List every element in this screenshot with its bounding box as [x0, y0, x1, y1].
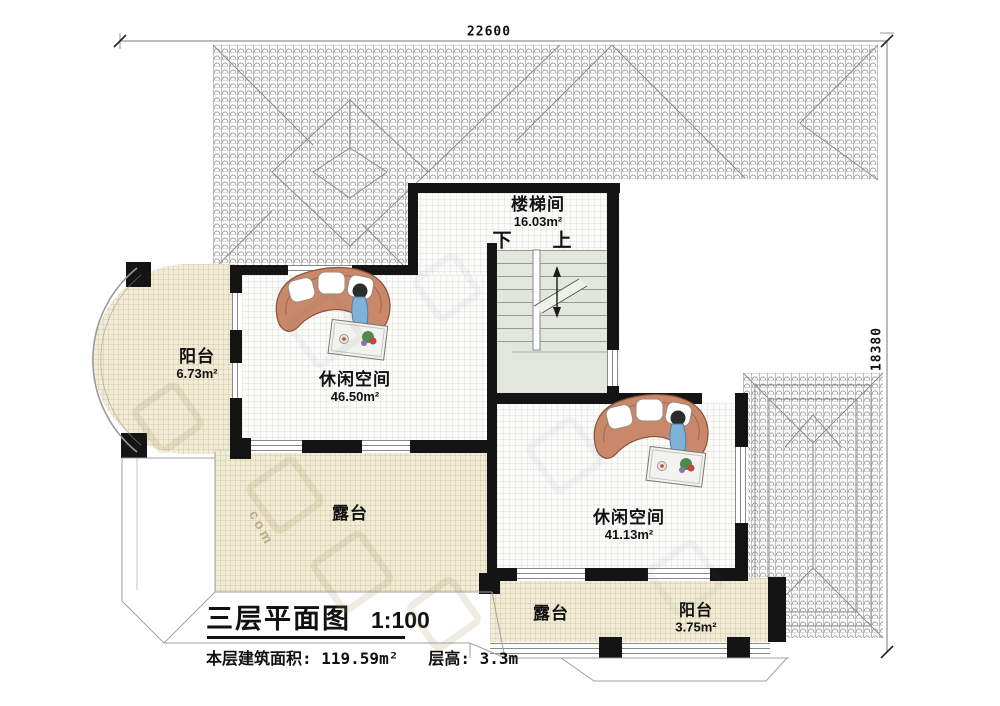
wall [302, 440, 362, 453]
balcony-left-area: 6.73m² [176, 366, 217, 381]
terrace-bottom-floor [490, 578, 770, 642]
wall [768, 577, 786, 642]
stairwell-name: 楼梯间 [511, 195, 565, 215]
leisure-left-floor [242, 275, 488, 443]
stairwell-label: 楼梯间 16.03m² [511, 195, 565, 229]
window [232, 293, 242, 330]
floor-height-text: 层高: 3.3m [428, 645, 518, 669]
leisure-right-area: 41.13m² [593, 527, 665, 542]
column [599, 637, 622, 658]
subtitle-row: 本层建筑面积: 119.59m² 层高: 3.3m [206, 645, 518, 669]
wall [410, 440, 497, 453]
wall [230, 265, 242, 293]
plan-scale: 1:100 [371, 607, 430, 634]
window [362, 440, 410, 453]
leisure-left-area: 46.50m² [319, 389, 391, 404]
terrace-bottom-label: 露台 [533, 604, 569, 624]
window [735, 447, 748, 523]
wall [585, 568, 648, 581]
wall [352, 265, 418, 275]
floor-area-text: 本层建筑面积: 119.59m² [206, 645, 398, 669]
column [121, 433, 147, 458]
wall [408, 183, 418, 275]
balcony-bottom-name: 阳台 [675, 602, 716, 620]
balcony-left-name: 阳台 [176, 347, 217, 367]
title-underline [207, 636, 405, 639]
window [288, 265, 352, 275]
leisure-right-label: 休闲空间 41.13m² [593, 508, 665, 542]
stair-treads [497, 250, 607, 353]
dimension-height: 18380 [870, 327, 885, 371]
window [232, 363, 242, 398]
window [248, 440, 302, 453]
title-block: 三层平面图 1:100 [206, 597, 430, 636]
balcony-bottom-label: 阳台 3.75m² [675, 602, 716, 635]
wall [408, 183, 620, 193]
wall [230, 330, 242, 363]
terrace-left-name: 露台 [332, 504, 368, 524]
column [230, 438, 251, 459]
terrace-bottom-name: 露台 [533, 604, 569, 624]
leisure-right-name: 休闲空间 [593, 508, 665, 528]
wall [487, 393, 702, 404]
leisure-right-floor [497, 403, 735, 570]
dimension-width: 22600 [467, 25, 511, 40]
window [517, 568, 585, 581]
wall [607, 183, 619, 350]
wall [487, 243, 497, 593]
balcony-bottom-area: 3.75m² [675, 621, 716, 636]
terrace-left-label: 露台 [332, 504, 368, 524]
balcony-left-label: 阳台 6.73m² [176, 347, 217, 381]
stair-down-label: 下 [492, 226, 511, 253]
window [648, 568, 710, 581]
floor-plan-canvas: 楼梯间 16.03m² 下 上 阳台 6.73m² 休闲空间 46.50m² 露… [0, 0, 1000, 706]
plan-title: 三层平面图 [206, 597, 351, 636]
stair-up-label: 上 [552, 226, 571, 253]
column [126, 262, 151, 287]
column [479, 573, 500, 594]
wall [710, 568, 748, 581]
leisure-left-label: 休闲空间 46.50m² [319, 370, 391, 404]
wall [735, 403, 748, 447]
column [727, 637, 750, 658]
leisure-left-name: 休闲空间 [319, 370, 391, 390]
window [607, 350, 619, 386]
